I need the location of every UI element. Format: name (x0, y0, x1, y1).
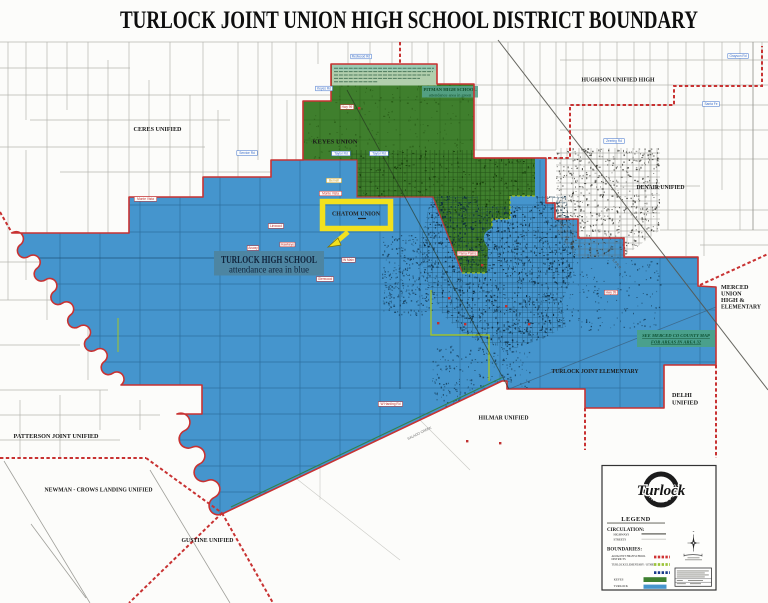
svg-text:Glenwood: Glenwood (318, 277, 333, 281)
svg-text:Taylor Rd: Taylor Rd (334, 152, 348, 156)
svg-text:ELEMENTARY: ELEMENTARY (721, 304, 761, 311)
svg-text:TURLOCK: TURLOCK (614, 584, 629, 588)
svg-text:CHATOM UNION: CHATOM UNION (332, 212, 381, 218)
svg-text:KEYES: KEYES (614, 577, 624, 581)
svg-text:Monte Vista: Monte Vista (322, 192, 339, 196)
svg-text:TURLOCK JOINT UNION HIGH SCHOO: TURLOCK JOINT UNION HIGH SCHOOL DISTRICT… (120, 7, 698, 34)
svg-text:DELHI: DELHI (672, 392, 693, 399)
svg-text:Linwood: Linwood (270, 224, 282, 228)
svg-text:CERES UNIFIED: CERES UNIFIED (134, 126, 182, 133)
svg-text:Taylor Rd: Taylor Rd (372, 152, 386, 156)
svg-text:STREETS: STREETS (614, 538, 627, 542)
svg-text:HUGHSON UNIFIED HIGH: HUGHSON UNIFIED HIGH (582, 77, 655, 84)
svg-text:Monte Vista: Monte Vista (137, 197, 154, 201)
svg-text:PITMAN HIGH SCHOOL: PITMAN HIGH SCHOOL (423, 87, 476, 92)
svg-text:Hawkeye: Hawkeye (281, 243, 294, 247)
svg-text:PATTERSON JOINT UNIFIED: PATTERSON JOINT UNIFIED (14, 433, 99, 440)
svg-text:DISTRICTS: DISTRICTS (612, 558, 627, 561)
svg-text:FOR AREAS IN AREA 32: FOR AREAS IN AREA 32 (651, 340, 702, 345)
svg-text:Bernell: Bernell (329, 179, 339, 183)
svg-text:Zeering Rd: Zeering Rd (606, 139, 622, 143)
svg-text:SEE MERCED CO COUNTY MAP: SEE MERCED CO COUNTY MAP (642, 333, 710, 338)
svg-text:attendance area in blue: attendance area in blue (229, 265, 309, 275)
svg-text:HILMAR UNIFIED: HILMAR UNIFIED (479, 415, 529, 422)
svg-text:Service Rd: Service Rd (239, 151, 255, 155)
svg-text:Santa Fe: Santa Fe (705, 102, 718, 106)
svg-text:TURLOCK ELEMENTARY / OTHER: TURLOCK ELEMENTARY / OTHER (612, 563, 656, 566)
svg-text:Redwood Rd: Redwood Rd (352, 55, 371, 59)
svg-text:GUSTINE UNIFIED: GUSTINE UNIFIED (182, 537, 234, 544)
svg-text:HIGHWAYS: HIGHWAYS (614, 533, 630, 537)
svg-text:NEWMAN - CROWS LANDING UNIFI: NEWMAN - CROWS LANDING UNIFIED (45, 487, 153, 494)
svg-text:Keyes Rd: Keyes Rd (317, 87, 331, 91)
svg-text:Pama Palms: Pama Palms (458, 252, 476, 256)
svg-text:W Harding Rd: W Harding Rd (380, 402, 400, 406)
svg-text:KEYES UNION: KEYES UNION (313, 139, 358, 146)
svg-text:DENAIR UNIFIED: DENAIR UNIFIED (637, 184, 685, 191)
svg-text:attendance area in green: attendance area in green (429, 92, 472, 97)
svg-text:Hwy 99: Hwy 99 (342, 105, 353, 109)
svg-text:Turlock: Turlock (637, 483, 686, 499)
svg-text:Hwy 99: Hwy 99 (606, 291, 617, 295)
svg-text:UNIFIED: UNIFIED (672, 400, 699, 407)
svg-text:Anway: Anway (248, 246, 258, 250)
svg-text:BOUNDARIES:: BOUNDARIES: (607, 548, 642, 553)
svg-text:LEGEND: LEGEND (621, 516, 650, 523)
svg-text:Grayson Rd: Grayson Rd (729, 54, 746, 58)
svg-text:TURLOCK JOINT ELEMENTARY: TURLOCK JOINT ELEMENTARY (552, 368, 639, 375)
svg-text:W Main: W Main (343, 258, 354, 262)
